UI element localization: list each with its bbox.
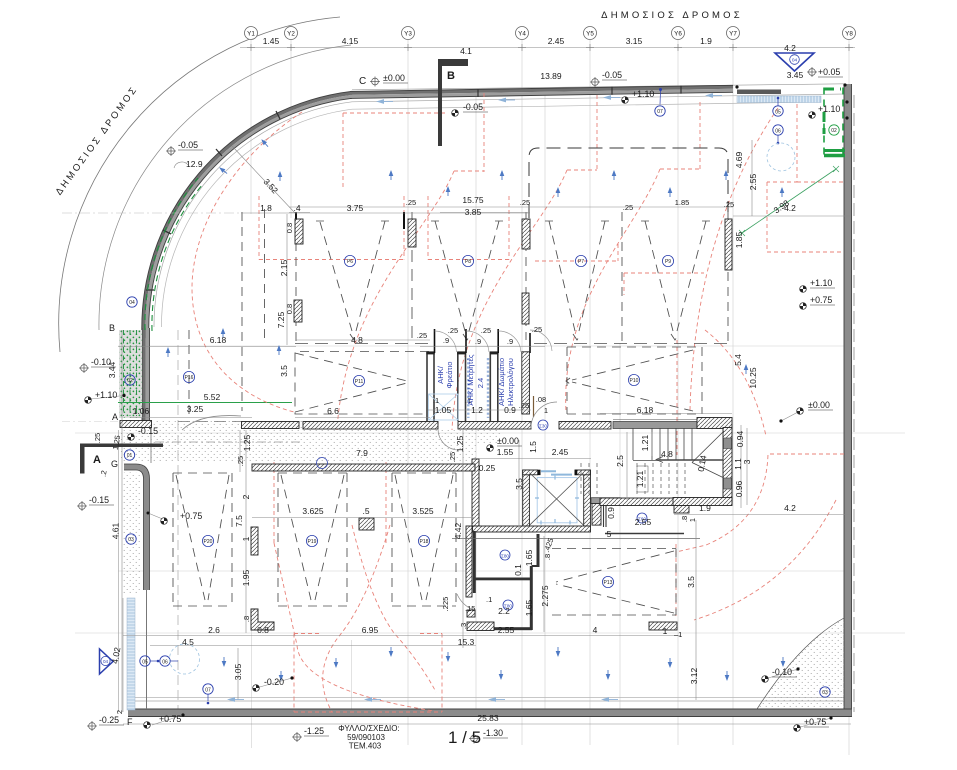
svg-text:ΤΕΜ.403: ΤΕΜ.403: [349, 742, 382, 751]
svg-text:5.52: 5.52: [204, 392, 221, 402]
svg-text:06: 06: [775, 129, 781, 135]
svg-text:+0.05: +0.05: [818, 67, 840, 77]
svg-text:1.5: 1.5: [528, 441, 538, 453]
svg-text:02: 02: [127, 378, 133, 384]
svg-text:.25: .25: [519, 401, 529, 410]
svg-text:+0.75: +0.75: [180, 511, 202, 521]
svg-text:C: C: [359, 76, 366, 87]
svg-text:1.25: 1.25: [455, 435, 465, 452]
svg-text:15.75: 15.75: [462, 195, 484, 205]
svg-text:P9: P9: [665, 259, 671, 265]
svg-text:.25: .25: [623, 203, 633, 212]
svg-text:.225: .225: [441, 597, 450, 612]
svg-text:A: A: [93, 454, 101, 466]
svg-text:2.45: 2.45: [552, 447, 569, 457]
svg-text:.3: .3: [459, 623, 468, 629]
svg-text:3.12: 3.12: [689, 667, 699, 684]
svg-text:04: 04: [129, 300, 135, 306]
svg-text:±0.00: ±0.00: [808, 400, 830, 410]
svg-text:1.85: 1.85: [734, 231, 744, 248]
svg-text:-0.05: -0.05: [463, 102, 483, 112]
svg-text:07: 07: [205, 688, 211, 694]
svg-text:6.95: 6.95: [362, 625, 379, 635]
svg-text:07: 07: [657, 109, 663, 115]
svg-text:.1: .1: [433, 396, 439, 405]
svg-text:3.25: 3.25: [187, 404, 204, 414]
svg-text:2.15: 2.15: [279, 259, 289, 276]
svg-text:.5: .5: [362, 506, 369, 516]
svg-text:P13: P13: [604, 580, 613, 586]
svg-text:ΑΗΚ/ Μετρητές: ΑΗΚ/ Μετρητές: [466, 354, 475, 405]
svg-text:+1.10: +1.10: [95, 390, 117, 400]
svg-text:Y4: Y4: [518, 31, 526, 38]
svg-text:1 / 5: 1 / 5: [448, 728, 481, 747]
svg-text:P18: P18: [420, 539, 429, 545]
svg-text:.25: .25: [448, 452, 457, 462]
svg-text:4.8: 4.8: [351, 335, 363, 345]
svg-text:03: 03: [822, 690, 828, 696]
svg-text:B: B: [447, 70, 455, 82]
svg-text:2.4: 2.4: [476, 378, 485, 389]
svg-text:4.42: 4.42: [453, 522, 463, 539]
svg-text:4: 4: [593, 625, 598, 635]
svg-text:A: A: [112, 412, 118, 422]
svg-text:Σ80: Σ80: [501, 554, 509, 559]
svg-text:04: 04: [792, 57, 798, 63]
svg-text:7.5: 7.5: [234, 515, 244, 527]
svg-text:0.94: 0.94: [735, 430, 745, 447]
svg-text:1.9: 1.9: [700, 36, 712, 46]
svg-text:P20: P20: [204, 539, 213, 545]
svg-text:.8: .8: [543, 554, 552, 560]
svg-text:1.8: 1.8: [260, 203, 272, 213]
svg-text:+1.10: +1.10: [810, 278, 832, 288]
svg-text:1.95: 1.95: [241, 569, 251, 586]
svg-text:3.85: 3.85: [465, 207, 482, 217]
svg-text:2.55: 2.55: [635, 517, 652, 527]
svg-text:1: 1: [544, 406, 548, 415]
svg-text:+0.75: +0.75: [159, 714, 181, 724]
svg-text:2.5: 2.5: [615, 455, 625, 467]
svg-text:01: 01: [127, 453, 133, 459]
svg-text:P19: P19: [308, 539, 317, 545]
svg-text:3.75: 3.75: [347, 203, 364, 213]
svg-text:-1.25: -1.25: [304, 726, 324, 736]
svg-text:1.9: 1.9: [699, 503, 711, 513]
svg-text:2: 2: [241, 494, 251, 499]
svg-text:-0.05: -0.05: [178, 140, 198, 150]
svg-text:-0.15: -0.15: [89, 495, 109, 505]
svg-text:.25: .25: [724, 200, 734, 209]
svg-text:.25: .25: [93, 433, 102, 443]
svg-text:.9: .9: [475, 337, 481, 346]
svg-text:±0.00: ±0.00: [497, 436, 519, 446]
svg-text:04: 04: [103, 659, 109, 664]
svg-text:.25: .25: [448, 326, 458, 335]
svg-text:15.3: 15.3: [458, 637, 475, 647]
svg-text:F: F: [127, 717, 133, 727]
svg-text:1.65: 1.65: [524, 599, 534, 616]
svg-text:3.15: 3.15: [626, 36, 643, 46]
svg-text:4.15: 4.15: [342, 36, 359, 46]
svg-text:7.9: 7.9: [356, 448, 368, 458]
svg-text:P10: P10: [630, 378, 639, 384]
svg-text:2.45: 2.45: [548, 36, 565, 46]
svg-text:.4: .4: [293, 203, 300, 213]
svg-text:0.8: 0.8: [257, 625, 269, 635]
svg-text:0.1: 0.1: [513, 564, 523, 576]
svg-text:1.65: 1.65: [524, 549, 534, 566]
svg-text:25.83: 25.83: [477, 713, 499, 723]
svg-text:Ηλεκτρολόγου: Ηλεκτρολόγου: [506, 358, 515, 406]
svg-text:4.8: 4.8: [661, 449, 673, 459]
svg-text:4.69: 4.69: [734, 151, 744, 168]
svg-text:12.9: 12.9: [186, 159, 203, 169]
svg-text:6.18: 6.18: [637, 405, 654, 415]
svg-text:2.275: 2.275: [540, 585, 550, 607]
svg-text:1: 1: [663, 626, 668, 636]
svg-text:3.625: 3.625: [302, 506, 324, 516]
svg-text:B: B: [109, 323, 115, 333]
svg-text:1.85: 1.85: [675, 198, 690, 207]
svg-text:3.5: 3.5: [514, 478, 524, 490]
svg-text:Y1: Y1: [247, 31, 255, 38]
svg-text:-0.25: -0.25: [99, 715, 119, 725]
svg-text:Y2: Y2: [287, 31, 295, 38]
svg-text:P11: P11: [355, 379, 364, 385]
svg-text:0.9: 0.9: [606, 507, 616, 519]
svg-text:1.05: 1.05: [435, 405, 452, 415]
svg-text:06: 06: [162, 660, 168, 666]
svg-text:4.5: 4.5: [182, 637, 194, 647]
svg-text:10.25: 10.25: [748, 367, 758, 389]
svg-text:P8: P8: [465, 259, 471, 265]
svg-text:±0.00: ±0.00: [383, 73, 405, 83]
svg-text:+0.75: +0.75: [810, 295, 832, 305]
svg-text:1.45: 1.45: [263, 36, 280, 46]
svg-text:05: 05: [775, 110, 781, 116]
svg-text:1: 1: [688, 518, 697, 522]
svg-text:.15: .15: [465, 604, 475, 613]
svg-text:1.21: 1.21: [640, 434, 650, 451]
svg-text:-0.15: -0.15: [138, 426, 158, 436]
svg-text:P16: P16: [185, 375, 194, 381]
svg-text:.9: .9: [443, 336, 449, 345]
svg-text:+1.10: +1.10: [632, 89, 654, 99]
svg-text:.9: .9: [507, 337, 513, 346]
svg-text:P6: P6: [347, 259, 353, 265]
svg-text:13.89: 13.89: [540, 71, 562, 81]
svg-text:3.05: 3.05: [233, 663, 243, 680]
svg-text:+1.10: +1.10: [818, 104, 840, 114]
svg-text:2.55: 2.55: [748, 173, 758, 190]
svg-text:1: 1: [241, 536, 251, 541]
svg-text:.08: .08: [536, 395, 546, 404]
svg-text:0.96: 0.96: [734, 480, 744, 497]
svg-text:Y5: Y5: [586, 31, 594, 38]
svg-text:2: 2: [115, 710, 124, 714]
svg-text:4.1: 4.1: [460, 46, 472, 56]
svg-text:ΔΗΜΟΣΙΟΣ ΔΡΟΜΟΣ: ΔΗΜΟΣΙΟΣ ΔΡΟΜΟΣ: [601, 10, 743, 21]
svg-text:Y7: Y7: [729, 31, 737, 38]
svg-text:3.44: 3.44: [107, 361, 117, 378]
svg-text:3.5: 3.5: [279, 365, 289, 377]
svg-text:3.525: 3.525: [412, 506, 434, 516]
svg-text:ΑΗΚ/ Δωμάτιο: ΑΗΚ/ Δωμάτιο: [497, 358, 506, 406]
svg-text:.25: .25: [417, 331, 427, 340]
svg-text:Y3: Y3: [404, 31, 412, 38]
svg-text:ΑΗΚ/: ΑΗΚ/: [436, 365, 445, 384]
svg-text:Σ30: Σ30: [539, 424, 547, 429]
svg-text:–1: –1: [674, 630, 682, 639]
svg-text:.25: .25: [520, 198, 530, 207]
svg-text:05: 05: [142, 660, 148, 666]
svg-text:+0.75: +0.75: [804, 717, 826, 727]
svg-text:-0.20: -0.20: [264, 677, 284, 687]
svg-text:02: 02: [831, 128, 837, 134]
svg-text:-1.30: -1.30: [483, 728, 503, 738]
svg-text:2.6: 2.6: [208, 625, 220, 635]
svg-text:Y6: Y6: [674, 31, 682, 38]
svg-text:0.8: 0.8: [285, 223, 294, 233]
svg-text:ΦΥΛΛΟ/ΣΧΕΔΙΟ:: ΦΥΛΛΟ/ΣΧΕΔΙΟ:: [338, 724, 399, 733]
svg-text:3: 3: [742, 459, 752, 464]
svg-text:03: 03: [128, 537, 134, 543]
svg-text:0.8: 0.8: [285, 304, 294, 314]
svg-text:1.21: 1.21: [635, 470, 645, 487]
svg-text:3.45: 3.45: [787, 70, 804, 80]
svg-text:1.06: 1.06: [133, 406, 150, 416]
svg-text:0.25: 0.25: [479, 463, 496, 473]
svg-text:.25: .25: [481, 326, 491, 335]
svg-text:Φρεάτιο: Φρεάτιο: [445, 361, 454, 388]
svg-text:G: G: [111, 459, 118, 469]
svg-text:2.55: 2.55: [498, 625, 515, 635]
svg-text:5.4: 5.4: [733, 354, 743, 366]
svg-text:1.25: 1.25: [242, 434, 252, 451]
svg-text:.1: .1: [486, 595, 492, 604]
svg-text:Y8: Y8: [845, 31, 853, 38]
svg-text:P7: P7: [578, 259, 584, 265]
svg-text:4.2: 4.2: [784, 503, 796, 513]
svg-text:5: 5: [607, 529, 612, 539]
svg-text:-0.05: -0.05: [602, 70, 622, 80]
svg-text:-0.10: -0.10: [772, 667, 792, 677]
svg-text:.25: .25: [236, 456, 245, 466]
svg-text:3.5: 3.5: [686, 576, 696, 588]
svg-text:.8: .8: [242, 616, 251, 622]
svg-text:4.61: 4.61: [111, 522, 121, 539]
svg-text:4.2: 4.2: [784, 43, 796, 53]
svg-text:6.18: 6.18: [210, 335, 227, 345]
svg-text:1.55: 1.55: [497, 447, 514, 457]
svg-text:.25: .25: [532, 325, 542, 334]
svg-text:6.6: 6.6: [327, 406, 339, 416]
svg-text:.25: .25: [406, 198, 416, 207]
svg-text:2.2: 2.2: [498, 606, 510, 616]
